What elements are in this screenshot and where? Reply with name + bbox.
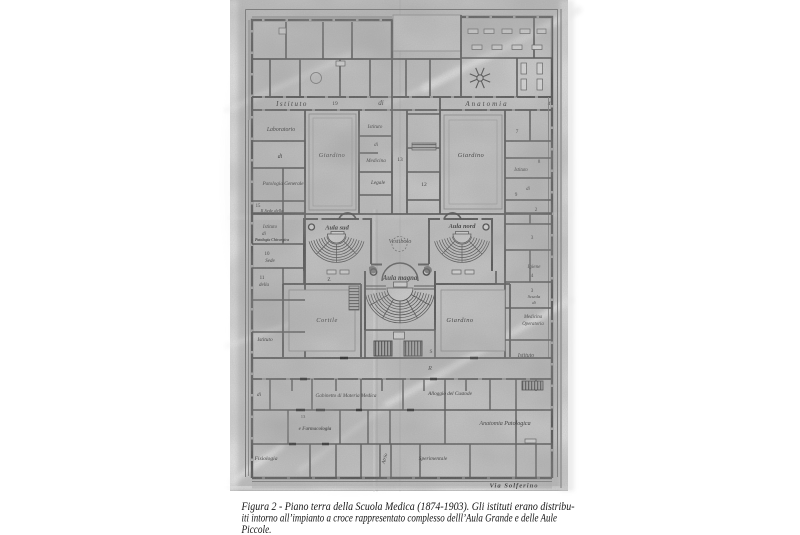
svg-text:iti intorno all’impianto a cro: iti intorno all’impianto a croce rappres… xyxy=(242,513,558,525)
svg-text:Piccole.: Piccole. xyxy=(241,524,272,535)
svg-text:Figura 2 - Piano terra della S: Figura 2 - Piano terra della Scuola Medi… xyxy=(241,501,575,513)
